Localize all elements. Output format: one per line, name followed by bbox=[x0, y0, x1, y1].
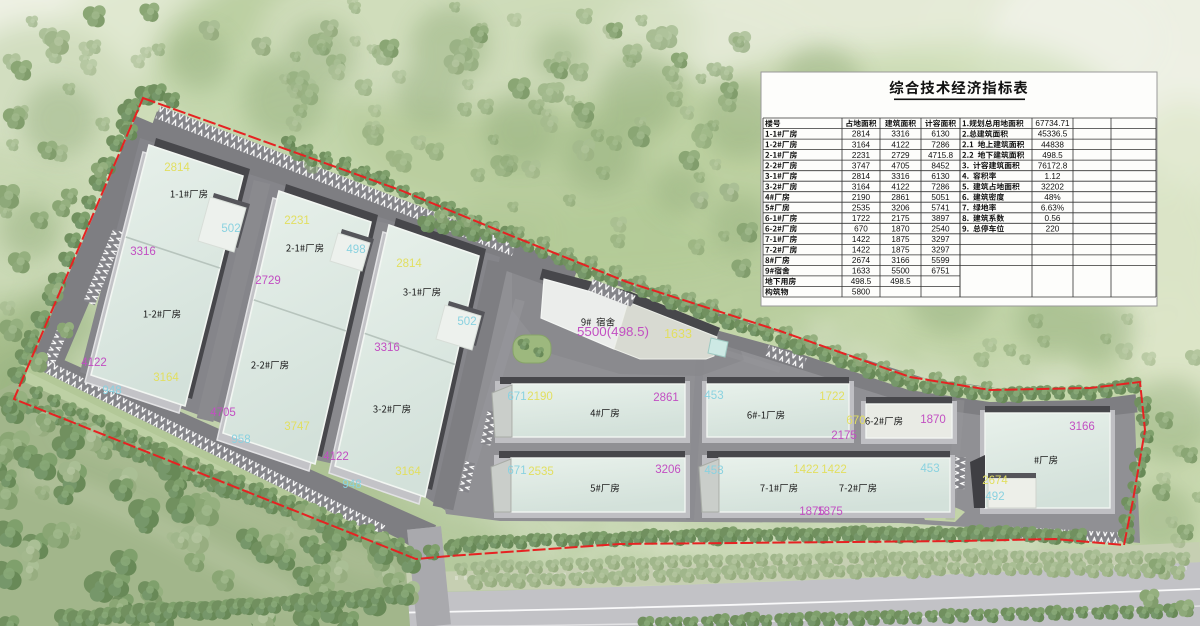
svg-text:948: 948 bbox=[342, 479, 361, 491]
svg-text:3166: 3166 bbox=[1069, 421, 1095, 433]
svg-text:1875: 1875 bbox=[891, 235, 910, 244]
svg-text:3164: 3164 bbox=[852, 182, 871, 191]
svg-text:7286: 7286 bbox=[931, 140, 950, 149]
svg-text:4122: 4122 bbox=[891, 140, 910, 149]
svg-text:3166: 3166 bbox=[891, 256, 910, 265]
svg-text:6.63%: 6.63% bbox=[1041, 203, 1064, 212]
svg-text:4122: 4122 bbox=[81, 357, 107, 369]
svg-text:1422: 1422 bbox=[852, 246, 871, 255]
svg-text:67734.71: 67734.71 bbox=[1035, 119, 1070, 128]
svg-text:3316: 3316 bbox=[130, 246, 156, 258]
svg-text:48%: 48% bbox=[1044, 193, 1060, 202]
svg-text:2861: 2861 bbox=[891, 193, 910, 202]
svg-text:5741: 5741 bbox=[931, 203, 950, 212]
svg-text:3316: 3316 bbox=[891, 130, 910, 139]
svg-text:3897: 3897 bbox=[931, 214, 950, 223]
svg-text:2535: 2535 bbox=[528, 466, 554, 478]
svg-text:6130: 6130 bbox=[931, 130, 950, 139]
svg-text:3206: 3206 bbox=[891, 203, 910, 212]
svg-text:1722: 1722 bbox=[819, 391, 845, 403]
svg-text:2814: 2814 bbox=[396, 258, 422, 270]
svg-text:492: 492 bbox=[985, 491, 1004, 503]
svg-text:6130: 6130 bbox=[931, 172, 950, 181]
svg-text:220: 220 bbox=[1046, 225, 1060, 234]
svg-text:4122: 4122 bbox=[891, 182, 910, 191]
svg-text:8452: 8452 bbox=[931, 161, 950, 170]
svg-text:498.5: 498.5 bbox=[890, 277, 911, 286]
svg-text:3297: 3297 bbox=[931, 246, 950, 255]
svg-text:1875: 1875 bbox=[891, 246, 910, 255]
svg-text:2674: 2674 bbox=[852, 256, 871, 265]
svg-text:1422: 1422 bbox=[852, 235, 871, 244]
svg-text:4705: 4705 bbox=[891, 161, 910, 170]
svg-text:2814: 2814 bbox=[852, 130, 871, 139]
svg-text:1422: 1422 bbox=[793, 464, 819, 476]
svg-text:3164: 3164 bbox=[153, 372, 179, 384]
svg-text:948: 948 bbox=[102, 385, 121, 397]
svg-text:1870: 1870 bbox=[920, 414, 946, 426]
svg-text:2814: 2814 bbox=[164, 162, 190, 174]
svg-text:7286: 7286 bbox=[931, 182, 950, 191]
svg-text:3747: 3747 bbox=[284, 421, 310, 433]
svg-text:5500(498.5): 5500(498.5) bbox=[577, 325, 649, 339]
svg-text:453: 453 bbox=[704, 390, 723, 402]
svg-text:2175: 2175 bbox=[831, 430, 857, 442]
svg-text:44838: 44838 bbox=[1041, 140, 1064, 149]
svg-text:3316: 3316 bbox=[374, 342, 400, 354]
svg-text:3297: 3297 bbox=[931, 235, 950, 244]
svg-text:2814: 2814 bbox=[852, 172, 871, 181]
svg-text:1875: 1875 bbox=[817, 506, 843, 518]
svg-text:2231: 2231 bbox=[852, 151, 871, 160]
svg-text:671: 671 bbox=[507, 391, 526, 403]
svg-text:2729: 2729 bbox=[255, 275, 281, 287]
svg-text:76172.8: 76172.8 bbox=[1038, 161, 1068, 170]
svg-text:453: 453 bbox=[920, 463, 939, 475]
svg-text:2861: 2861 bbox=[653, 392, 679, 404]
svg-text:5500: 5500 bbox=[891, 267, 910, 276]
svg-text:498.5: 498.5 bbox=[851, 277, 872, 286]
svg-text:3206: 3206 bbox=[655, 464, 681, 476]
svg-text:2535: 2535 bbox=[852, 203, 871, 212]
svg-text:453: 453 bbox=[704, 465, 723, 477]
svg-text:671: 671 bbox=[507, 465, 526, 477]
svg-text:2190: 2190 bbox=[852, 193, 871, 202]
svg-text:1722: 1722 bbox=[852, 214, 871, 223]
svg-text:4705: 4705 bbox=[210, 407, 236, 419]
svg-text:670: 670 bbox=[846, 415, 865, 427]
svg-text:3164: 3164 bbox=[395, 466, 421, 478]
svg-text:2190: 2190 bbox=[527, 391, 553, 403]
svg-text:1633: 1633 bbox=[852, 267, 871, 276]
svg-text:5599: 5599 bbox=[931, 256, 950, 265]
svg-text:502: 502 bbox=[221, 223, 240, 235]
svg-text:6751: 6751 bbox=[931, 267, 950, 276]
svg-text:45336.5: 45336.5 bbox=[1038, 130, 1068, 139]
svg-text:2175: 2175 bbox=[891, 214, 910, 223]
svg-text:32202: 32202 bbox=[1041, 182, 1064, 191]
svg-text:3747: 3747 bbox=[852, 161, 871, 170]
svg-text:0.56: 0.56 bbox=[1045, 214, 1061, 223]
svg-text:2540: 2540 bbox=[931, 225, 950, 234]
svg-text:502: 502 bbox=[457, 316, 476, 328]
svg-text:4122: 4122 bbox=[323, 451, 349, 463]
svg-text:498.5: 498.5 bbox=[1042, 151, 1063, 160]
svg-text:1633: 1633 bbox=[664, 327, 692, 341]
svg-text:2674: 2674 bbox=[982, 475, 1008, 487]
svg-text:5800: 5800 bbox=[852, 288, 871, 297]
svg-text:2729: 2729 bbox=[891, 151, 910, 160]
svg-text:1870: 1870 bbox=[891, 225, 910, 234]
svg-text:498: 498 bbox=[346, 244, 365, 256]
svg-text:4715.8: 4715.8 bbox=[928, 151, 953, 160]
svg-text:5051: 5051 bbox=[931, 193, 950, 202]
svg-text:3164: 3164 bbox=[852, 140, 871, 149]
svg-text:1.12: 1.12 bbox=[1045, 172, 1061, 181]
svg-text:1422: 1422 bbox=[821, 464, 847, 476]
svg-text:3316: 3316 bbox=[891, 172, 910, 181]
svg-text:2231: 2231 bbox=[284, 215, 310, 227]
svg-text:958: 958 bbox=[231, 434, 250, 446]
svg-text:670: 670 bbox=[854, 225, 868, 234]
